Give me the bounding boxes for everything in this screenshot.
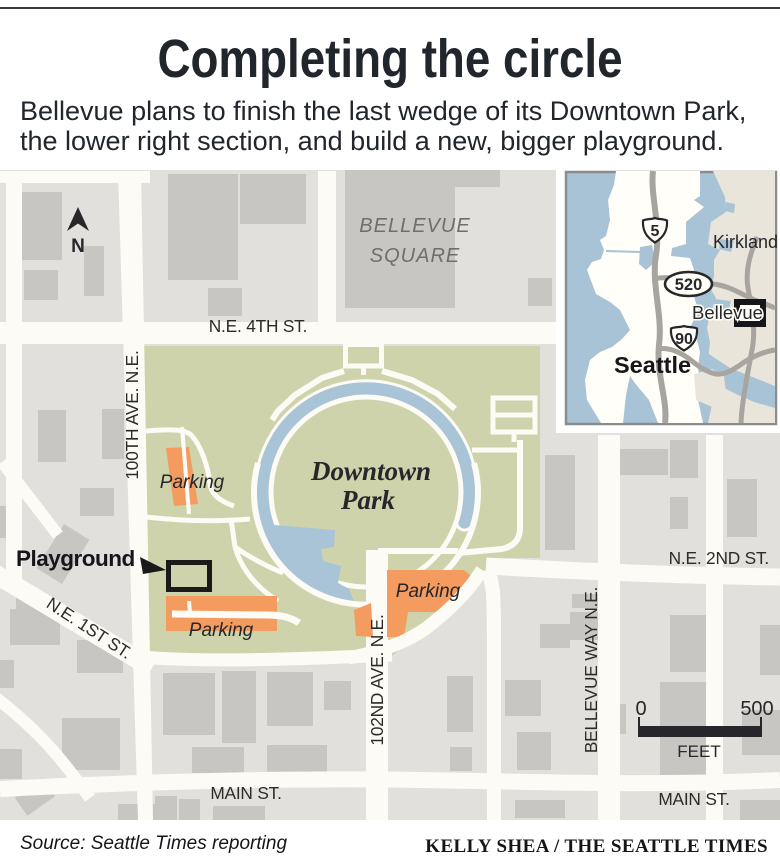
svg-text:MAIN ST.: MAIN ST. [210,783,281,803]
svg-text:Playground: Playground [16,546,135,571]
svg-text:100TH AVE. N.E.: 100TH AVE. N.E. [122,350,142,479]
svg-text:BELLEVUE: BELLEVUE [359,215,470,237]
svg-text:FEET: FEET [677,742,720,761]
svg-text:SQUARE: SQUARE [370,245,460,267]
svg-text:Kirkland: Kirkland [713,232,778,252]
svg-text:Seattle: Seattle [614,352,691,378]
svg-text:Bellevue: Bellevue [692,302,763,323]
svg-text:5: 5 [651,223,660,240]
svg-text:N.E. 4TH ST.: N.E. 4TH ST. [209,316,307,336]
svg-text:90: 90 [675,331,693,348]
svg-text:Parking: Parking [189,620,254,641]
svg-text:Park: Park [340,485,396,515]
svg-text:N.E. 2ND ST.: N.E. 2ND ST. [669,548,769,568]
svg-text:Parking: Parking [396,581,461,602]
svg-text:N: N [71,236,85,257]
svg-text:520: 520 [675,276,703,294]
svg-text:0: 0 [635,698,646,720]
svg-text:500: 500 [740,698,773,720]
svg-text:Parking: Parking [160,472,225,493]
svg-text:Downtown: Downtown [310,456,431,486]
svg-text:MAIN ST.: MAIN ST. [658,789,729,809]
svg-text:BELLEVUE WAY N.E.: BELLEVUE WAY N.E. [581,587,601,753]
svg-text:102ND AVE. N.E.: 102ND AVE. N.E. [367,614,387,745]
